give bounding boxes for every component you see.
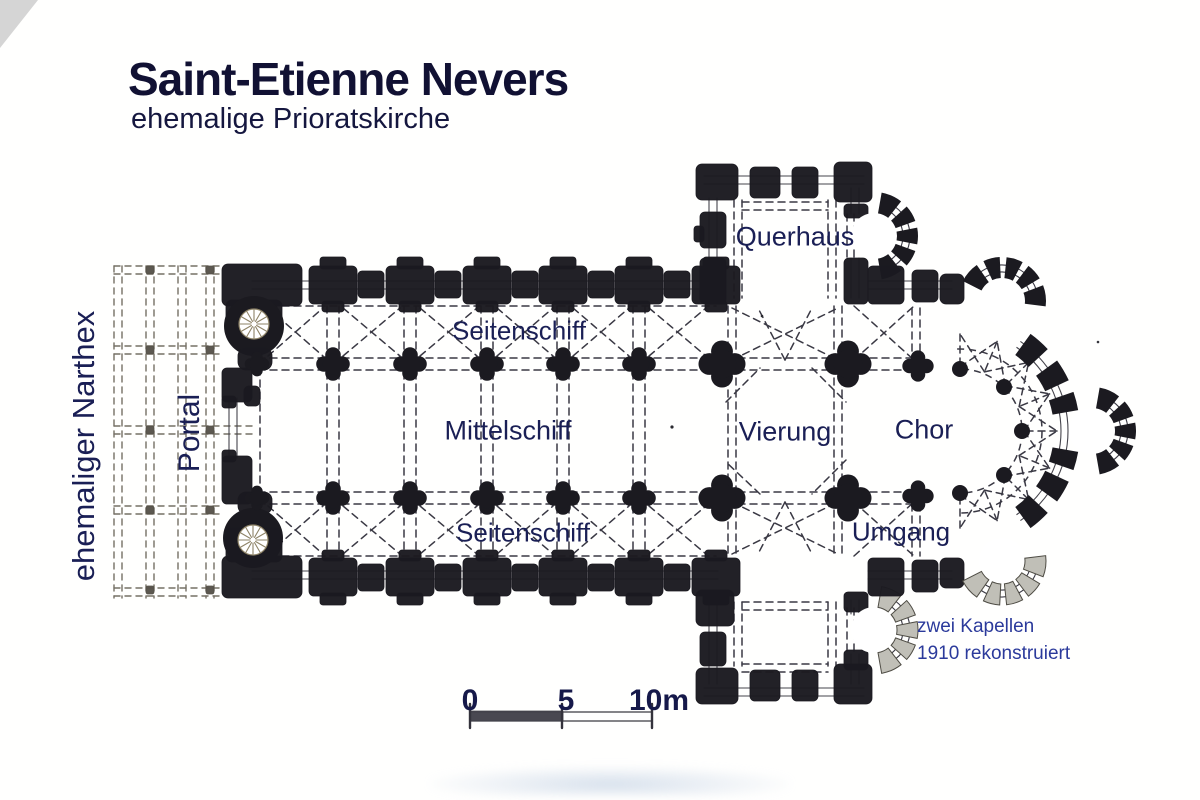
label-ehemaliger-narthex: ehemaliger Narthex xyxy=(66,311,102,582)
label-portal: Portal xyxy=(173,394,207,472)
page-title: Saint-Etienne Nevers xyxy=(128,52,568,106)
label-seitenschiff-south: Seitenschiff xyxy=(456,518,590,549)
label-seitenschiff-north: Seitenschiff xyxy=(452,316,586,347)
label-querhaus: Querhaus xyxy=(736,222,855,253)
label-chor: Chor xyxy=(895,415,954,446)
label-umgang: Umgang xyxy=(852,517,950,548)
note-zwei-kapellen-line2: 1910 rekonstruiert xyxy=(917,643,1070,665)
page-corner-artifact xyxy=(0,0,38,48)
label-mittelschiff: Mittelschiff xyxy=(444,416,571,447)
scanned-floor-plan-page: Saint-Etienne Nevers ehemalige Prioratsk… xyxy=(0,0,1200,800)
scale-tick-0: 0 xyxy=(462,684,479,718)
page-subtitle: ehemalige Prioratskirche xyxy=(131,103,450,136)
note-zwei-kapellen-line1: zwei Kapellen xyxy=(917,616,1034,638)
scale-tick-5: 5 xyxy=(558,684,575,718)
label-vierung: Vierung xyxy=(739,417,832,448)
page-bleedthrough-smudge xyxy=(430,766,790,796)
scale-tick-10m: 10m xyxy=(629,684,689,718)
